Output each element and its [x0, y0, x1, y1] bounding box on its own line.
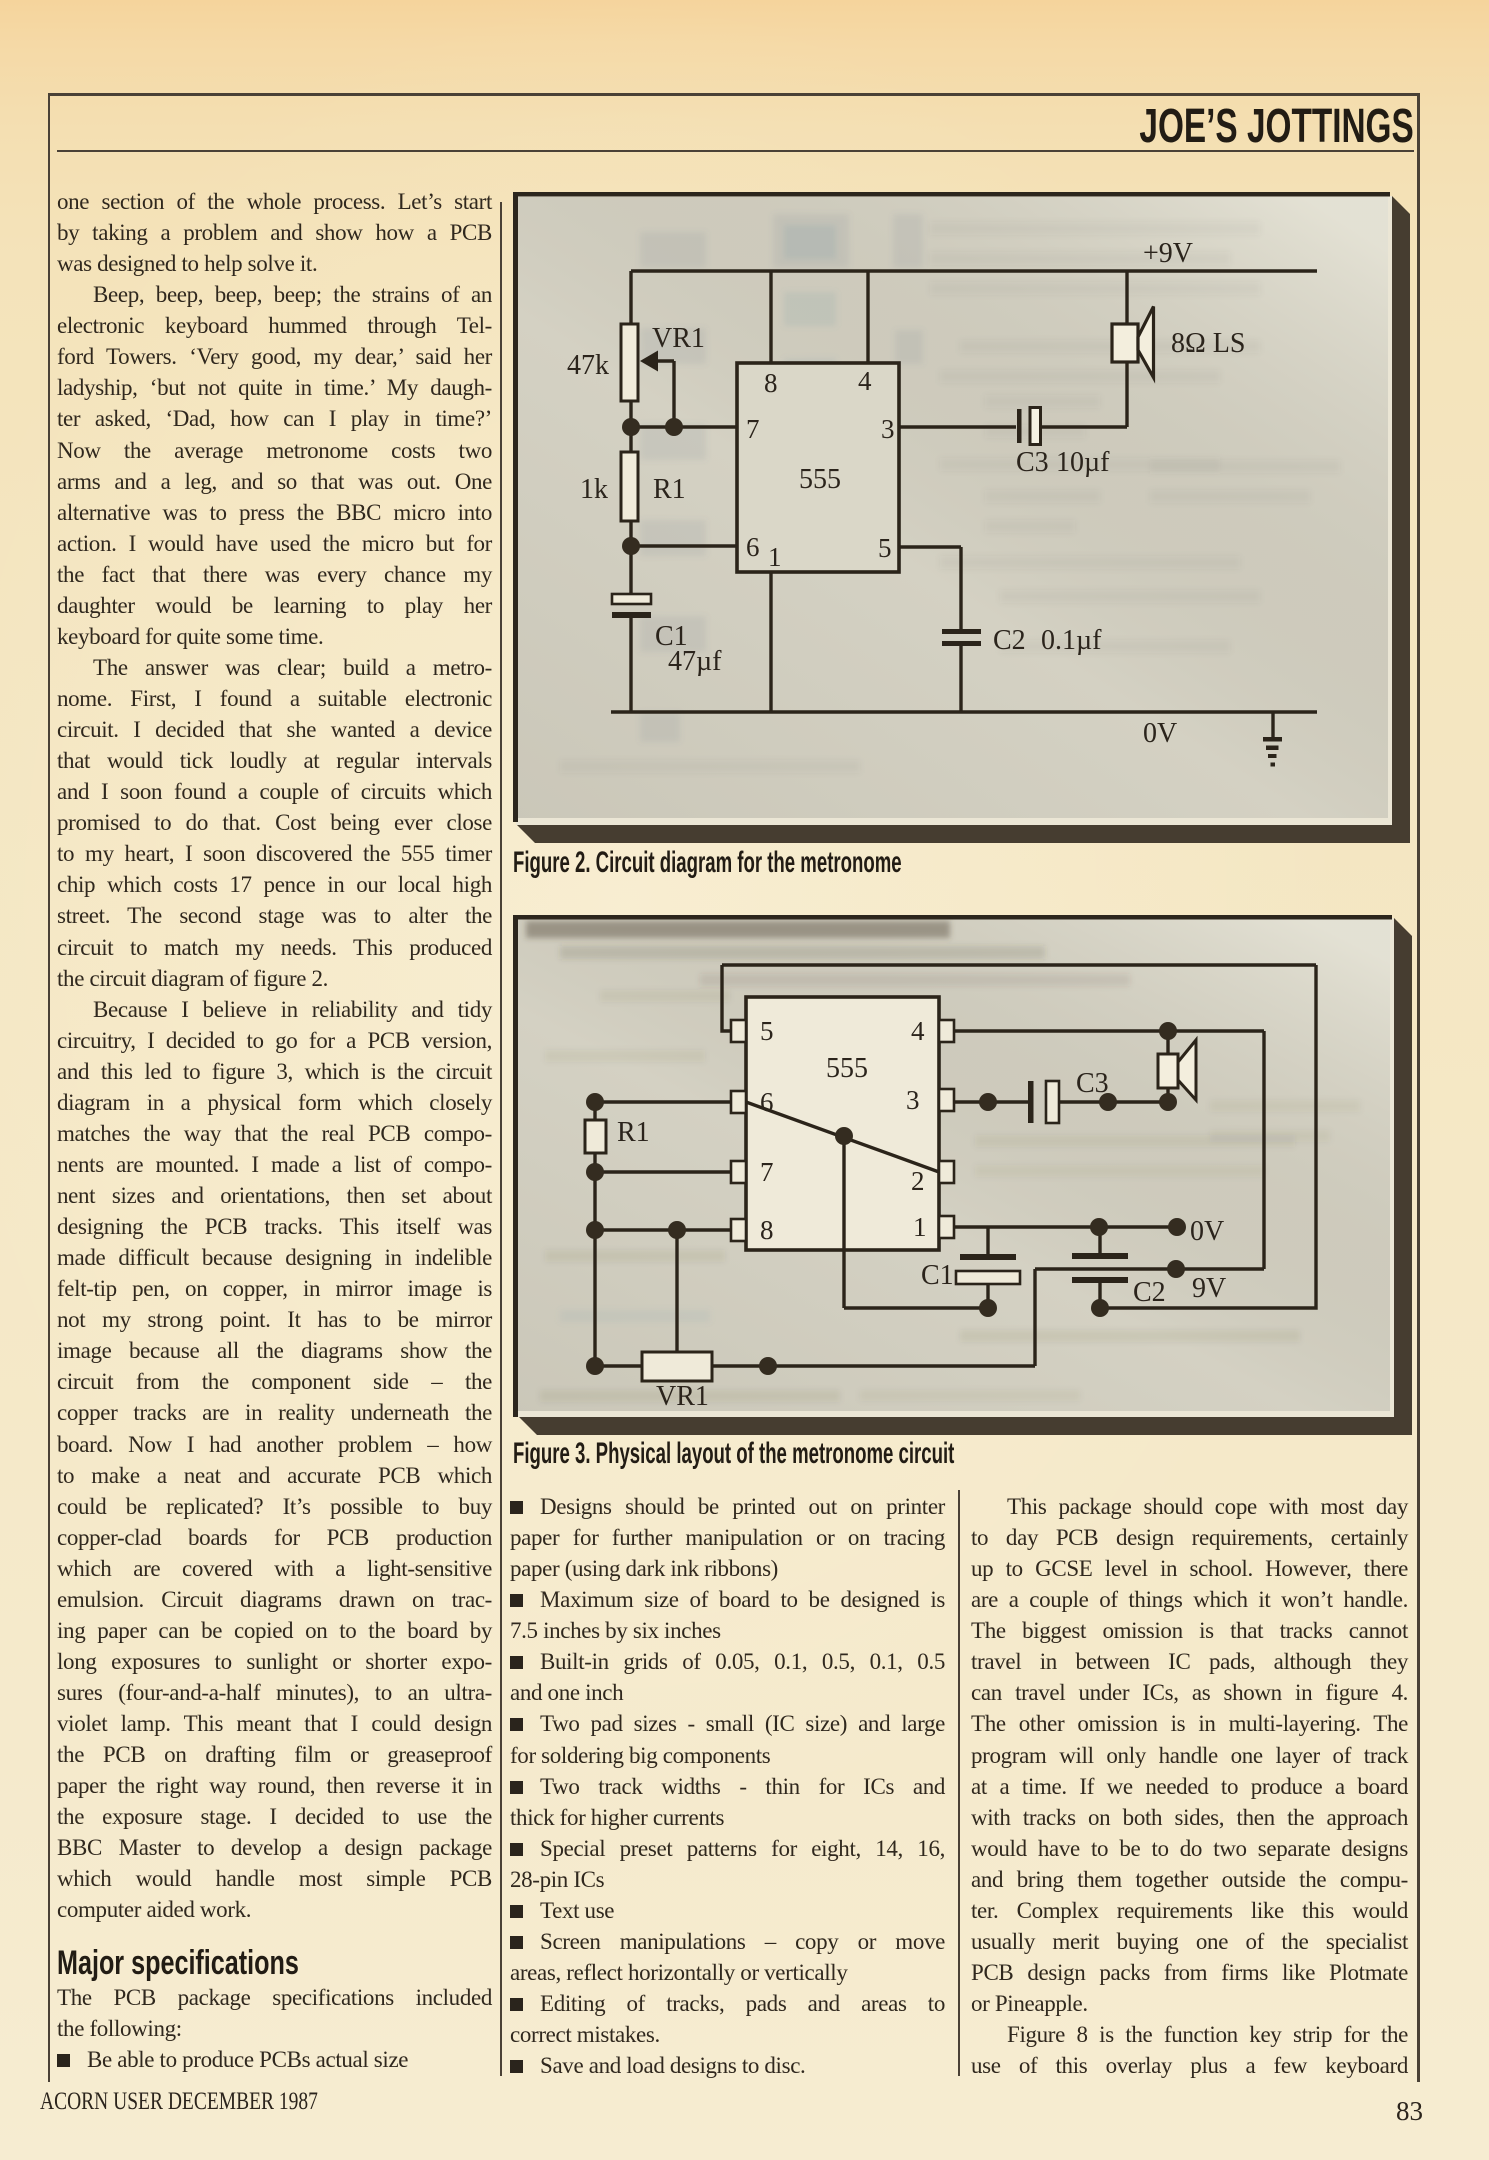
svg-text:C2: C2	[993, 625, 1026, 656]
svg-text:C1: C1	[921, 1260, 954, 1291]
svg-text:4: 4	[911, 1016, 925, 1046]
svg-text:47k: 47k	[567, 350, 609, 381]
svg-text:C3: C3	[1016, 447, 1049, 478]
svg-text:9V: 9V	[1192, 1273, 1226, 1304]
svg-text:C2: C2	[1133, 1277, 1166, 1308]
svg-text:1k: 1k	[580, 474, 608, 505]
svg-text:R1: R1	[617, 1117, 650, 1148]
svg-text:3: 3	[906, 1085, 920, 1115]
svg-text:555: 555	[799, 464, 841, 495]
svg-text:8: 8	[764, 368, 778, 398]
svg-text:VR1: VR1	[656, 1381, 709, 1412]
svg-text:47µf: 47µf	[668, 646, 722, 677]
svg-text:3: 3	[881, 414, 895, 444]
svg-text:555: 555	[826, 1053, 868, 1084]
svg-text:8Ω LS: 8Ω LS	[1171, 328, 1245, 359]
svg-text:4: 4	[858, 366, 872, 396]
svg-text:C3: C3	[1076, 1068, 1109, 1099]
svg-text:7: 7	[746, 414, 760, 444]
svg-text:7: 7	[760, 1157, 774, 1187]
svg-text:VR1: VR1	[652, 323, 705, 354]
svg-text:10µf: 10µf	[1056, 447, 1110, 478]
svg-text:R1: R1	[653, 474, 686, 505]
svg-text:5: 5	[760, 1016, 774, 1046]
svg-text:6: 6	[746, 532, 760, 562]
svg-text:1: 1	[913, 1212, 927, 1242]
svg-text:1: 1	[768, 542, 782, 572]
svg-text:0V: 0V	[1143, 718, 1177, 749]
svg-text:0V: 0V	[1190, 1216, 1224, 1247]
svg-text:+9V: +9V	[1143, 238, 1193, 269]
svg-text:8: 8	[760, 1215, 774, 1245]
svg-text:2: 2	[911, 1166, 925, 1196]
svg-text:5: 5	[878, 533, 892, 563]
svg-text:6: 6	[760, 1087, 774, 1117]
svg-text:0.1µf: 0.1µf	[1041, 625, 1102, 656]
